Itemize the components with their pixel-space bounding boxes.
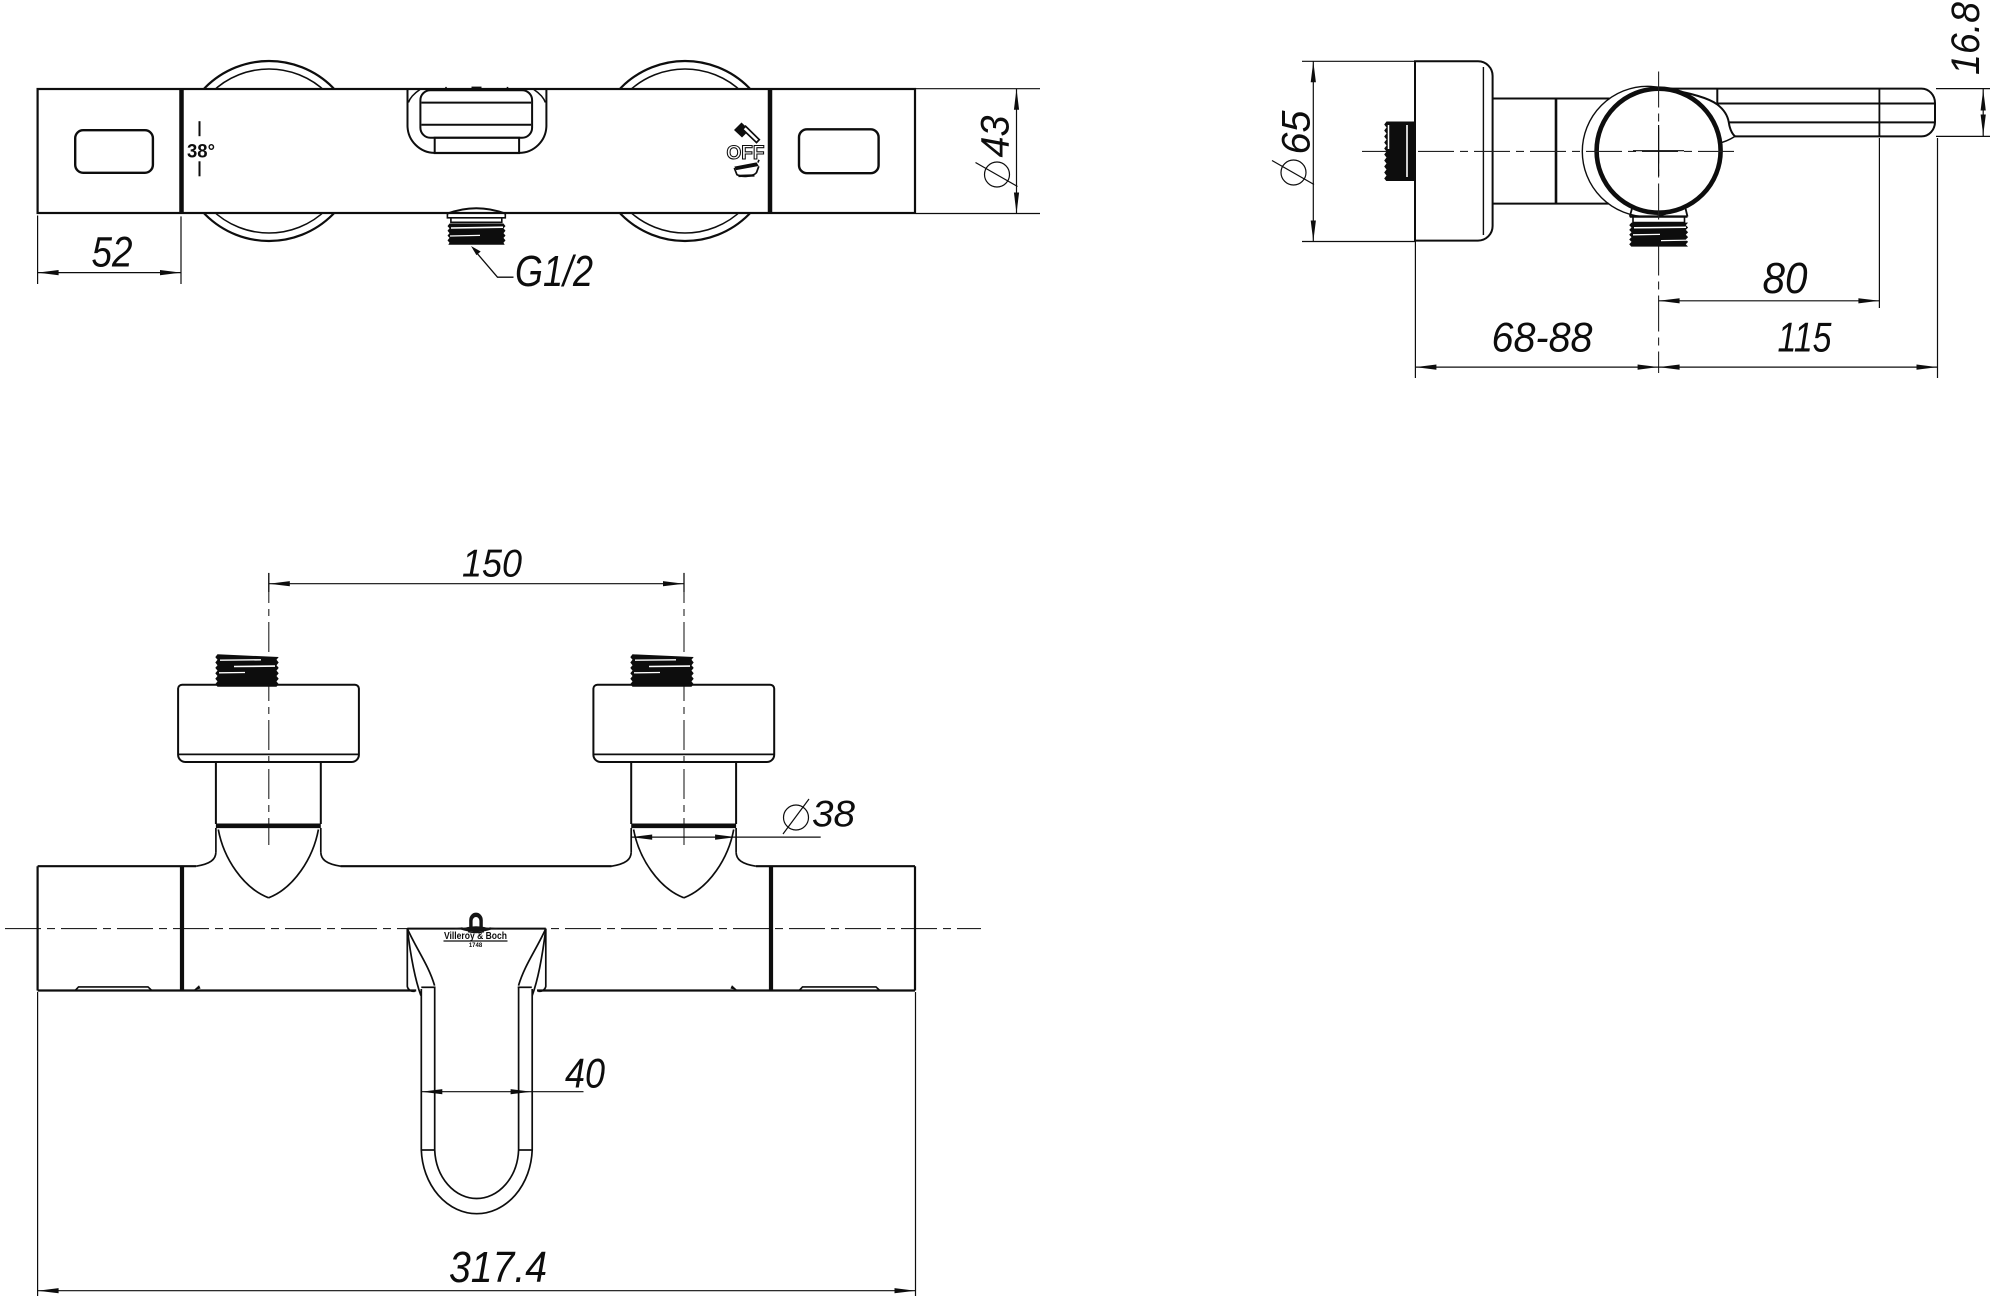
svg-text:Villeroy & Boch: Villeroy & Boch [444, 930, 507, 942]
svg-text:68-88: 68-88 [1492, 314, 1594, 361]
svg-text:317.4: 317.4 [449, 1243, 547, 1292]
svg-text:38: 38 [812, 794, 855, 835]
svg-text:115: 115 [1778, 314, 1833, 361]
svg-text:43: 43 [974, 116, 1018, 158]
svg-text:80: 80 [1763, 254, 1808, 303]
svg-text:16.8: 16.8 [1944, 1, 1988, 75]
svg-text:G1/2: G1/2 [515, 247, 593, 296]
svg-text:38°: 38° [187, 142, 215, 163]
svg-text:150: 150 [462, 543, 522, 586]
svg-text:52: 52 [92, 229, 133, 277]
svg-text:65: 65 [1275, 110, 1319, 155]
svg-text:1748: 1748 [469, 943, 483, 949]
svg-text:40: 40 [565, 1050, 606, 1097]
